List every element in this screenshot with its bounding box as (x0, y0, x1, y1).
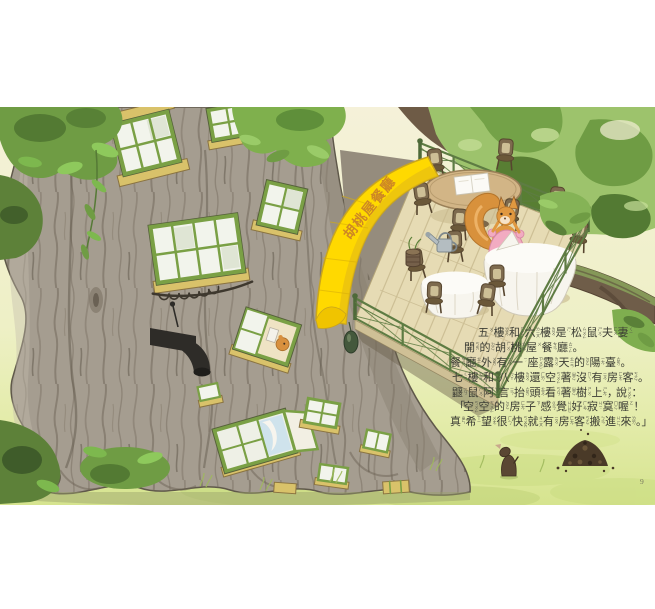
story-line-5: 鼴ㄧㄢˇ鼠ㄕㄨˇ阿ㄚ言ㄧㄢˊ抬ㄊㄞˊ頭ㄊㄡˊ看ㄎㄢˋ著ㄓㄜ˙樹ㄕㄨˋ上ㄕㄤˋ，說… (450, 387, 655, 402)
story-line-1: 五ㄨˇ樓ㄌㄡˊ和ㄏㄜˊ六ㄌㄧㄡˋ樓ㄌㄡˊ是ㄕˋ松ㄙㄨㄥ鼠ㄕㄨˇ夫ㄈㄨ妻ㄑㄧ (450, 327, 655, 342)
story-line-2: 開ㄎㄞ的ㄉㄜ˙胡ㄏㄨˊ桃ㄊㄠˊ屋ㄨ餐ㄘㄢ廳ㄊㄧㄥ。 (450, 342, 655, 357)
tree-illustration: 胡桃屋餐廳 (0, 0, 655, 609)
story-line-6: 「空ㄎㄨㄥ空ㄎㄨㄥ的ㄉㄜ˙房ㄈㄤˊ子ㄗ˙感ㄍㄢˇ覺ㄐㄩㄝˊ好ㄏㄠˇ寂ㄐㄧˊ寞ㄇㄛ… (450, 401, 655, 416)
story-line-4: 七ㄑㄧ樓ㄌㄡˊ和ㄏㄜˊ八ㄅㄚ樓ㄌㄡˊ還ㄏㄞˊ空ㄎㄨㄥ著ㄓㄜ˙沒ㄇㄟˊ有ㄧㄡˇ房ㄈ… (450, 372, 655, 387)
window-11-ledge (383, 480, 410, 494)
open-book (454, 173, 490, 195)
window-10-ledge (274, 482, 297, 494)
story-line-7: 真ㄓㄣ希ㄒㄧ望ㄨㄤˋ很ㄏㄣˇ快ㄎㄨㄞˋ就ㄐㄧㄡˋ有ㄧㄡˇ房ㄈㄤˊ客ㄎㄜˋ搬ㄅㄢ進… (450, 416, 655, 431)
book-page: 胡桃屋餐廳 (0, 0, 655, 609)
page-number: 9 (640, 477, 644, 486)
story-text: 五ㄨˇ樓ㄌㄡˊ和ㄏㄜˊ六ㄌㄧㄡˋ樓ㄌㄡˊ是ㄕˋ松ㄙㄨㄥ鼠ㄕㄨˇ夫ㄈㄨ妻ㄑㄧ開ㄎㄞ… (450, 327, 655, 431)
story-line-3: 餐ㄘㄢ廳ㄊㄧㄥ外ㄨㄞˋ有ㄧㄡˇ一ㄧˊ座ㄗㄨㄛˋ露ㄌㄨˋ天ㄊㄧㄢ的ㄉㄜ˙陽ㄧㄤˊ臺… (450, 357, 655, 372)
